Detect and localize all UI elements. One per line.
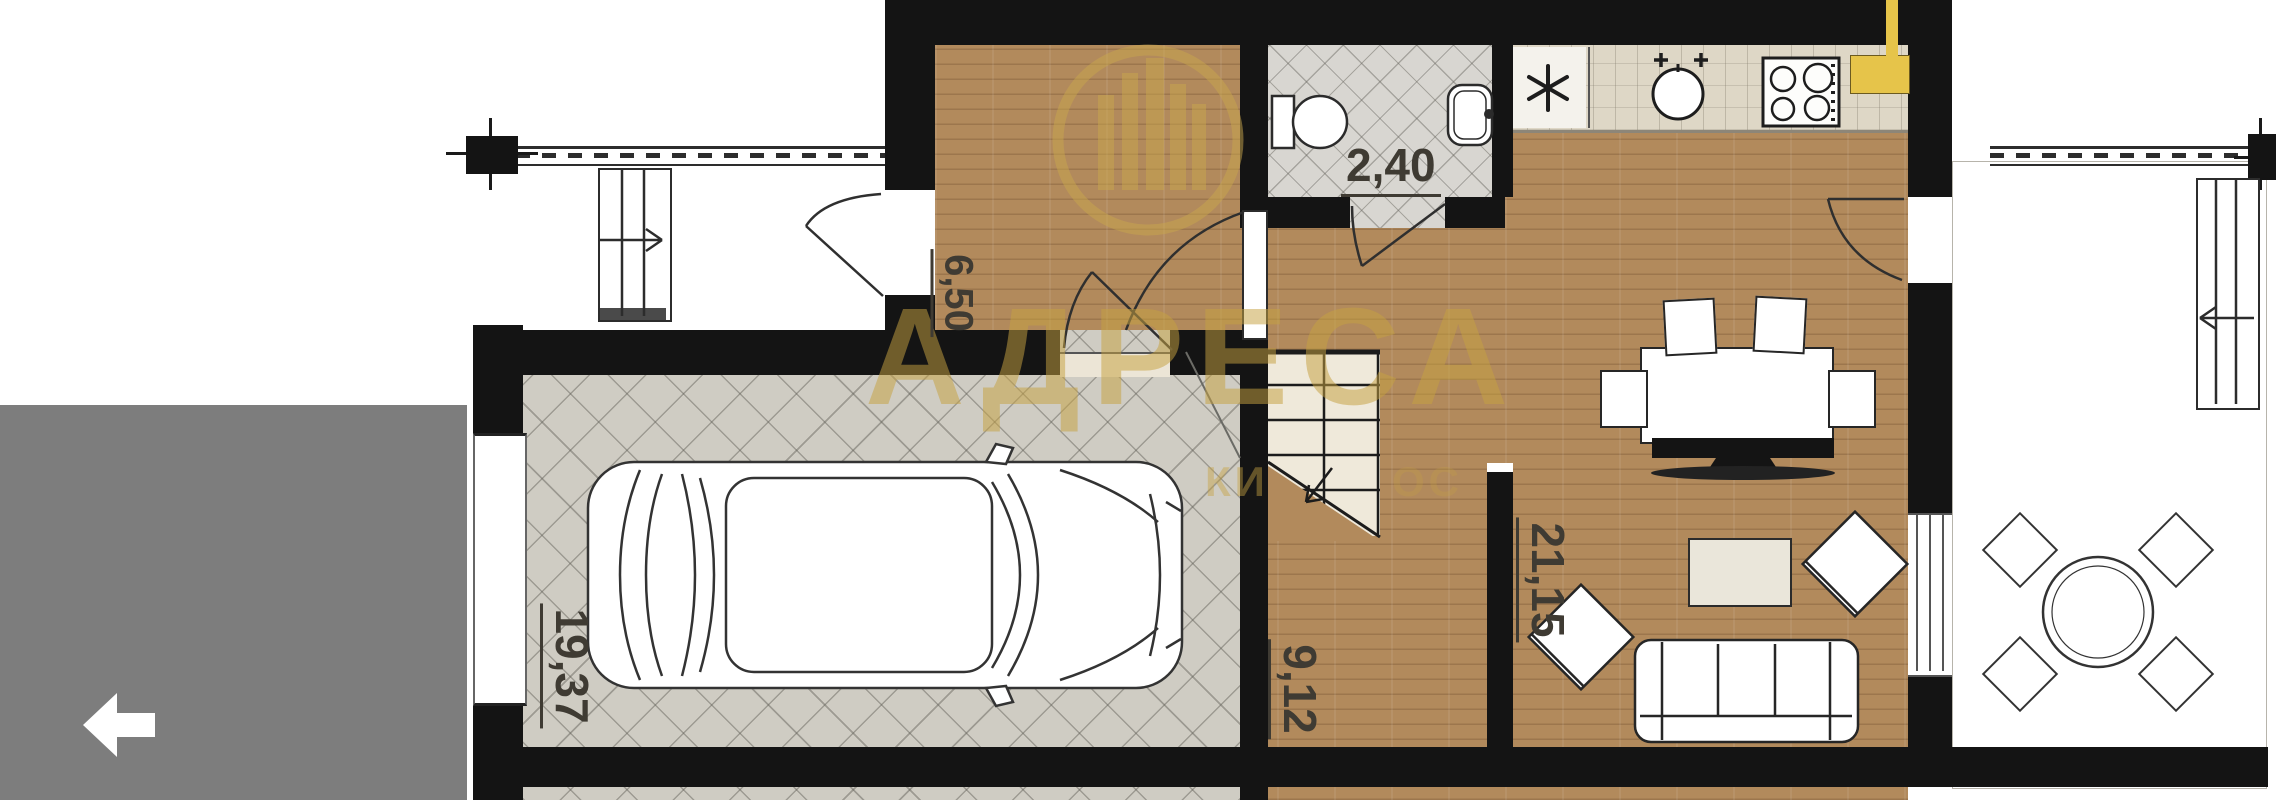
fridge-cell [1508,47,1586,128]
right-railing [1990,146,2248,166]
wall-hall-left-upper [885,0,935,190]
room-label-corridor: 9,12 [1273,639,1327,739]
back-arrow-icon [83,693,155,757]
left-railing [516,146,885,166]
back-arrow-button[interactable] [55,685,175,775]
dining-chair [1663,298,1718,357]
room-label-wc: 2,40 [1341,138,1441,192]
left-column [466,136,518,174]
wall-corridor-living [1487,463,1513,747]
window-mullion [1942,515,1944,671]
wall-right-mid [1908,283,1952,513]
wall-bath-bottom-right [1445,197,1505,228]
room-label-garage: 19,37 [545,603,599,728]
coffee-table [1688,538,1792,607]
kitchen-yellow-unit [1850,55,1910,94]
entry-steps-shade [600,308,666,320]
dining-chair [1753,296,1808,355]
door-frame-tick [1487,463,1513,472]
window-mullion [1929,515,1931,671]
watermark-fragment: ОС [1392,458,1463,506]
viewer-overlay [0,405,467,800]
yellow-duct [1886,0,1898,57]
terrace-steps [2196,178,2260,410]
wall-bath-kitchen [1492,45,1513,197]
entry-steps [598,168,672,322]
right-column [2248,134,2276,180]
window-mullion [1916,515,1918,671]
garage-door [473,433,527,706]
room-label-hall: 6,50 [936,249,981,337]
dining-chair [1828,370,1876,428]
counter-divider [1588,47,1590,128]
room-label-living: 21,15 [1521,517,1575,642]
watermark-fragment: КИ [1205,458,1269,506]
wall-bottom [473,747,2268,787]
dining-chair [1600,370,1648,428]
wall-top [885,0,1950,45]
wall-topright-corner [1908,0,1952,197]
wall-hall-corridor-upper [1240,45,1268,207]
dining-table [1640,347,1834,444]
floor-plan: АДРЕСА КИ ОС 2,40 6,50 19,37 9,12 21,15 [0,0,2276,800]
